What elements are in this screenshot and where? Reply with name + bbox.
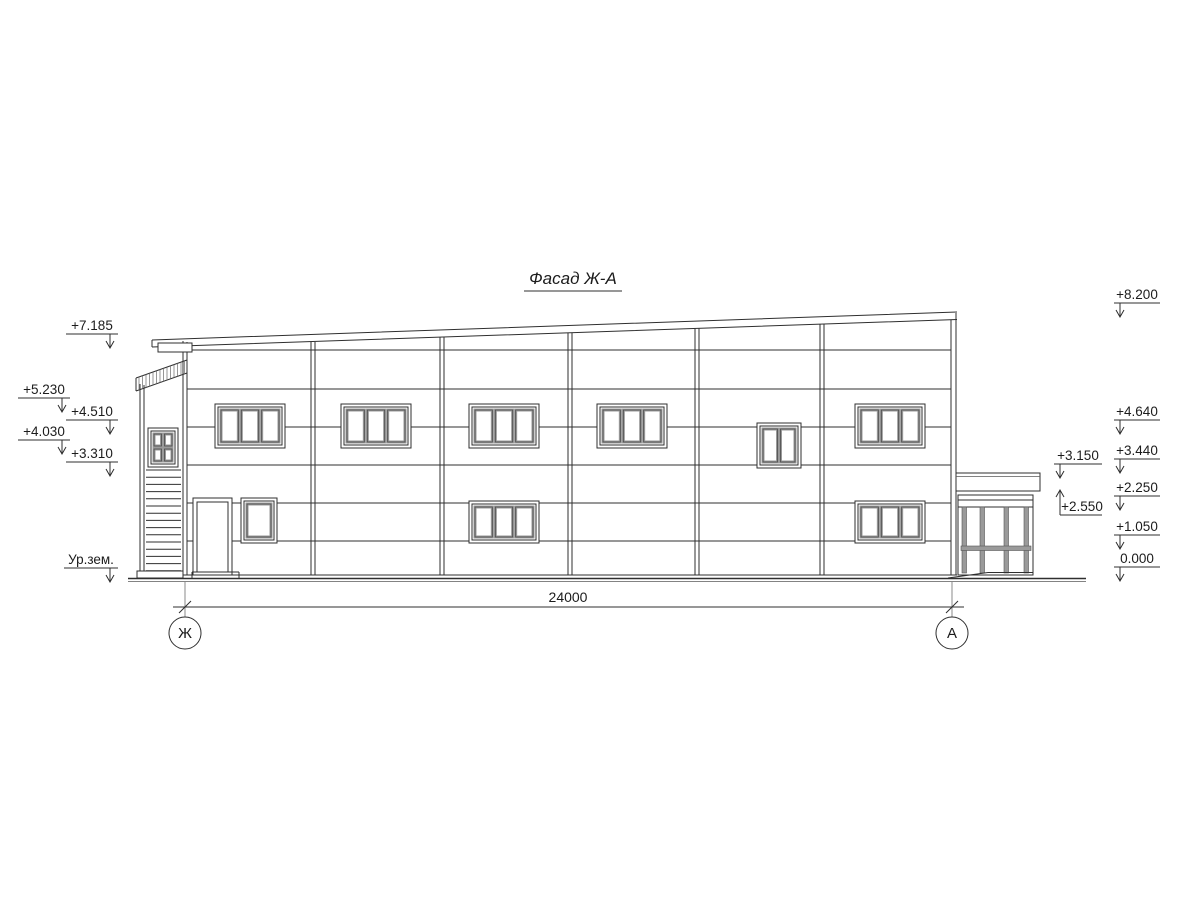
axis-left-label: Ж	[178, 625, 192, 642]
svg-text:+8.200: +8.200	[1116, 287, 1158, 302]
elevation-mark-1050: +1.050	[1114, 519, 1160, 549]
tower-wall	[140, 384, 144, 571]
eave-bar	[158, 343, 192, 352]
title-text: Фасад Ж-А	[529, 269, 617, 288]
tower-window	[148, 428, 178, 467]
entrance-annex	[948, 473, 1040, 578]
svg-text:+2.550: +2.550	[1061, 499, 1103, 514]
svg-text:+3.150: +3.150	[1057, 448, 1099, 463]
svg-text:+3.440: +3.440	[1116, 443, 1158, 458]
facade-drawing-canvas: Фасад Ж-А	[0, 0, 1200, 900]
svg-text:+2.250: +2.250	[1116, 480, 1158, 495]
svg-text:+1.050: +1.050	[1116, 519, 1158, 534]
axis-marker-left: Ж	[169, 617, 201, 649]
elevation-mark-3150: +3.150	[1054, 448, 1102, 478]
elevation-mark-5230: +5.230	[18, 382, 70, 412]
ground-line	[128, 579, 1086, 582]
svg-text:+4.640: +4.640	[1116, 404, 1158, 419]
panel-joints	[187, 350, 951, 541]
svg-text:Ур.зем.: Ур.зем.	[68, 552, 114, 567]
dimension-line: 24000	[173, 582, 964, 617]
drawing-title: Фасад Ж-А	[524, 269, 622, 291]
elevation-mark-3310: +3.310	[66, 446, 118, 476]
tower-plinth	[137, 571, 183, 578]
main-facade	[152, 312, 957, 578]
entrance-door	[193, 498, 232, 575]
elevation-mark-4030: +4.030	[18, 424, 70, 454]
svg-text:+3.310: +3.310	[71, 446, 113, 461]
facade-edges	[183, 313, 956, 575]
svg-text:+7.185: +7.185	[71, 318, 113, 333]
svg-text:0.000: 0.000	[1120, 551, 1154, 566]
windows	[215, 404, 925, 543]
svg-text:+5.230: +5.230	[23, 382, 65, 397]
dim-value: 24000	[549, 589, 588, 605]
elevation-mark-4510: +4.510	[66, 404, 118, 434]
stair-tower	[136, 360, 187, 578]
stair-lines	[146, 470, 181, 571]
elevation-mark-2250: +2.250	[1114, 480, 1160, 510]
elevation-mark-3440: +3.440	[1114, 443, 1160, 473]
annex-canopy	[956, 473, 1040, 491]
elevation-mark-8200: +8.200	[1114, 287, 1160, 317]
elevation-mark-0000: 0.000	[1114, 551, 1160, 581]
elevation-mark-2550: +2.550	[1056, 490, 1103, 515]
svg-text:+4.510: +4.510	[71, 404, 113, 419]
elevation-mark-ground: Ур.зем.	[64, 552, 118, 582]
drawing-sheet: Фасад Ж-А	[0, 0, 1200, 900]
elevation-mark-7185: +7.185	[66, 318, 118, 348]
parapet-cap	[152, 312, 957, 347]
tower-roof-hatch	[139, 361, 185, 390]
bay-mullions	[311, 324, 824, 575]
axis-right-label: А	[947, 625, 957, 642]
axis-marker-right: А	[936, 617, 968, 649]
elevation-mark-4640: +4.640	[1114, 404, 1160, 434]
svg-text:+4.030: +4.030	[23, 424, 65, 439]
